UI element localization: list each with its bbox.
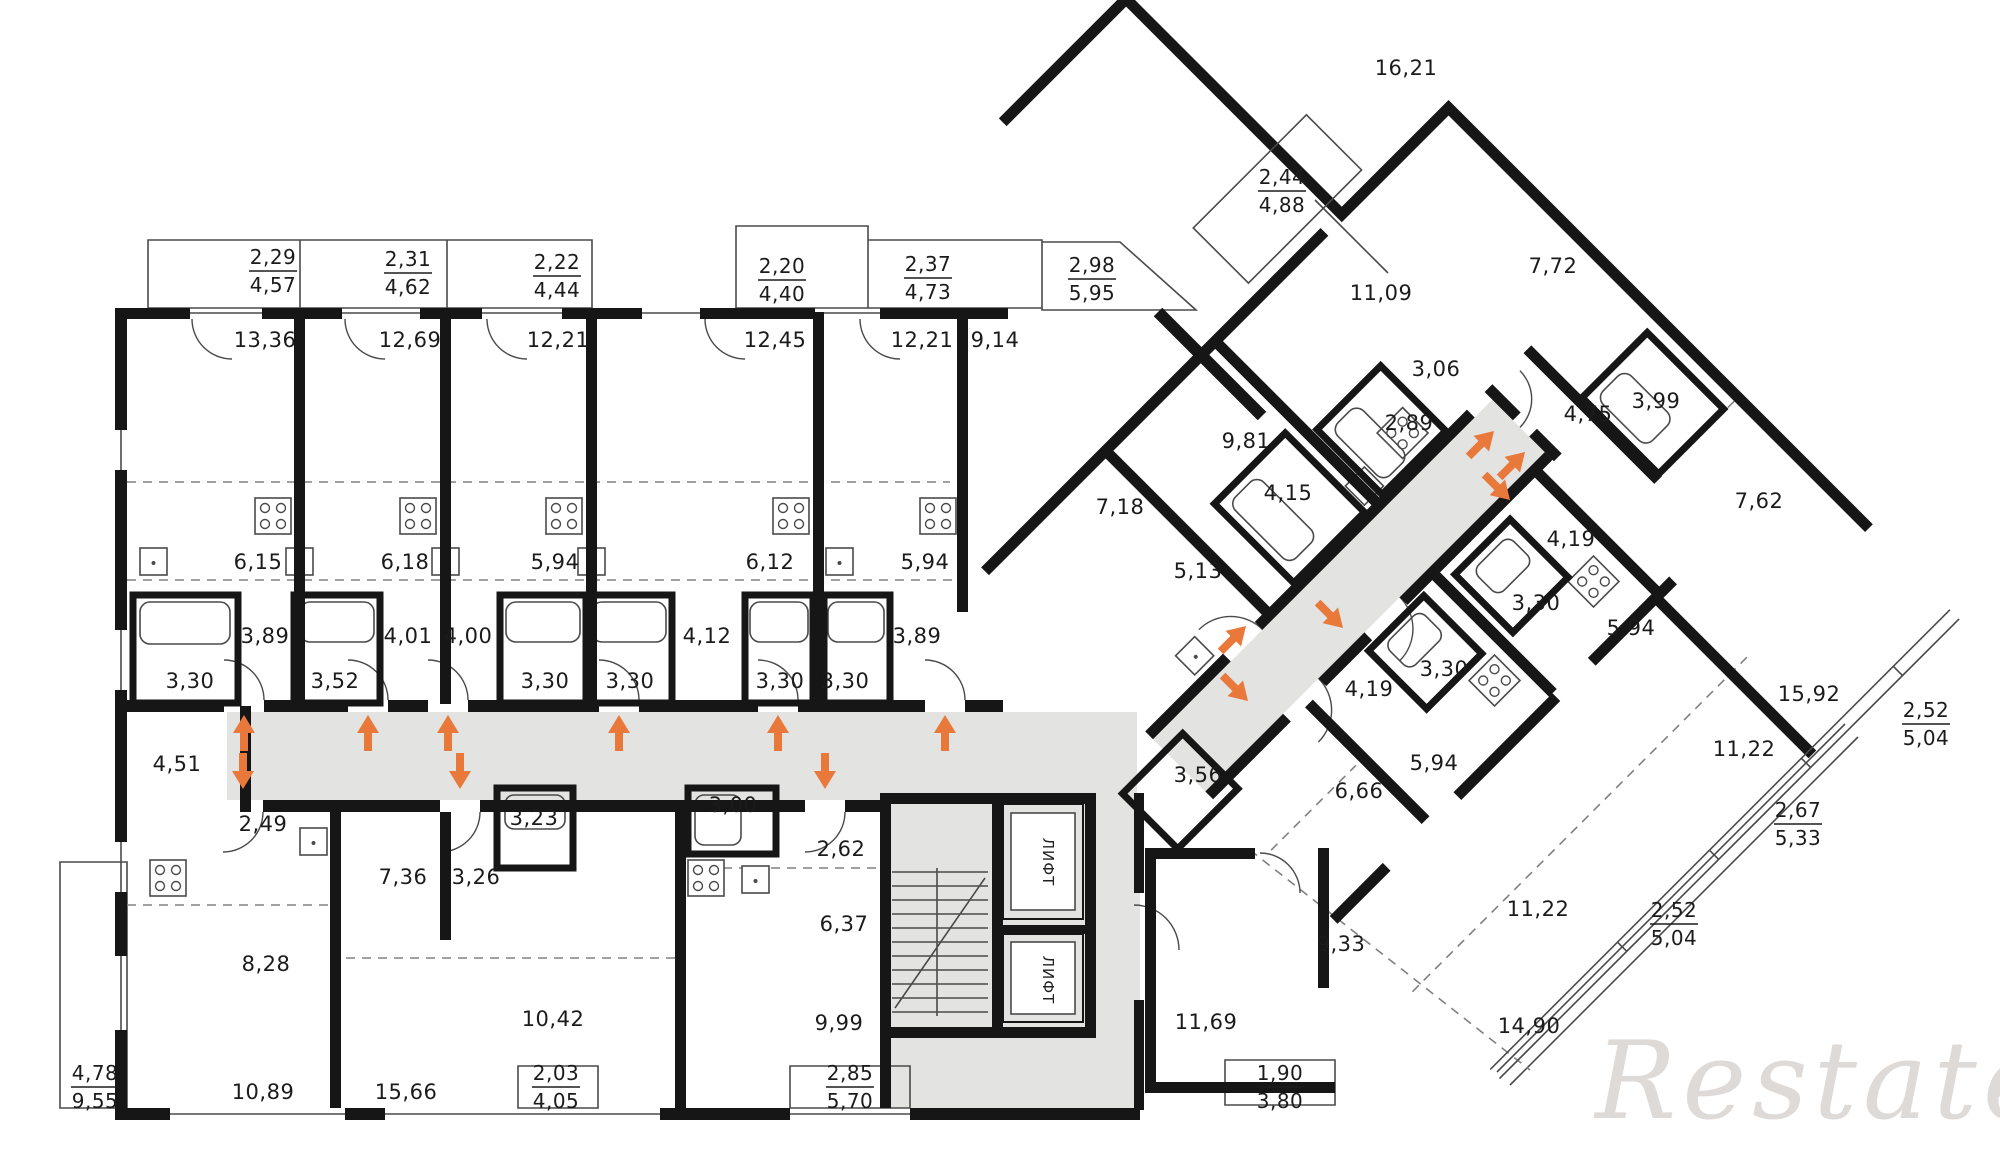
room-label: 7,18 — [1096, 495, 1145, 519]
svg-text:5,95: 5,95 — [1069, 281, 1116, 305]
fraction: 2,67 5,33 — [1774, 798, 1822, 850]
sink-icon — [300, 828, 327, 855]
room-label: 11,09 — [1350, 281, 1413, 305]
room-label: 12,45 — [744, 328, 807, 352]
fraction: 2,20 4,40 — [758, 254, 806, 306]
room-label: 14,90 — [1498, 1014, 1561, 1038]
floor-plan-canvas: 13,36 12,69 12,21 12,45 12,21 9,14 6,15 … — [0, 0, 2000, 1164]
room-label: 3,56 — [1174, 763, 1223, 787]
fraction: 2,22 4,44 — [533, 250, 581, 302]
bathtub-icon — [140, 602, 230, 644]
room-label: 7,36 — [379, 865, 428, 889]
room-label: 12,21 — [891, 328, 954, 352]
room-label: 9,99 — [815, 1011, 864, 1035]
room-label: 3,52 — [311, 669, 360, 693]
room-label: 5,94 — [531, 550, 580, 574]
svg-text:2,52: 2,52 — [1903, 698, 1950, 722]
svg-text:3,80: 3,80 — [1257, 1089, 1304, 1113]
stove-icon — [688, 860, 724, 896]
room-label: 5,94 — [901, 550, 950, 574]
room-label: 9,14 — [971, 328, 1020, 352]
stove-icon — [1568, 556, 1619, 607]
room-label: 4,15 — [1264, 481, 1313, 505]
room-label: 15,66 — [375, 1080, 438, 1104]
fraction: 2,31 4,62 — [384, 247, 432, 299]
stove-icon — [255, 498, 291, 534]
svg-text:2,85: 2,85 — [827, 1061, 874, 1085]
svg-text:4,62: 4,62 — [385, 275, 432, 299]
room-label: 3,89 — [241, 624, 290, 648]
room-label: 6,12 — [746, 550, 795, 574]
room-label: 10,89 — [232, 1080, 295, 1104]
floor-plan: 13,36 12,69 12,21 12,45 12,21 9,14 6,15 … — [0, 0, 2000, 1164]
bathtub-icon — [592, 602, 666, 642]
sink-icon — [742, 866, 769, 893]
room-label: 3,30 — [1420, 657, 1469, 681]
room-label: 3,26 — [452, 865, 501, 889]
svg-text:2,37: 2,37 — [905, 252, 952, 276]
svg-text:5,33: 5,33 — [1775, 826, 1822, 850]
svg-text:2,31: 2,31 — [385, 247, 432, 271]
fraction: 2,52 5,04 — [1650, 898, 1698, 950]
svg-text:4,78: 4,78 — [72, 1061, 119, 1085]
stove-icon — [400, 498, 436, 534]
svg-text:2,22: 2,22 — [534, 250, 581, 274]
room-label: 3,30 — [821, 669, 870, 693]
fraction: 2,44 4,88 — [1258, 165, 1306, 217]
fraction: 2,52 5,04 — [1902, 698, 1950, 750]
room-label: 6,66 — [1335, 779, 1384, 803]
room-label: 4,51 — [153, 752, 202, 776]
svg-text:2,52: 2,52 — [1651, 898, 1698, 922]
svg-text:5,04: 5,04 — [1651, 926, 1698, 950]
bathtub-icon — [506, 602, 580, 642]
svg-text:2,44: 2,44 — [1259, 165, 1306, 189]
room-label: 4,19 — [1547, 527, 1596, 551]
room-label: 10,42 — [522, 1007, 585, 1031]
elevator-label: ЛИФТ — [1039, 838, 1057, 887]
svg-text:5,04: 5,04 — [1903, 726, 1950, 750]
svg-text:4,88: 4,88 — [1259, 193, 1306, 217]
sink-icon — [826, 548, 853, 575]
room-label: 4,00 — [444, 624, 493, 648]
room-label: 3,89 — [893, 624, 942, 648]
room-label: 3,30 — [1512, 591, 1561, 615]
room-label: 2,62 — [817, 837, 866, 861]
bathtub-icon — [750, 602, 808, 642]
room-label: 3,00 — [709, 793, 758, 817]
svg-text:1,90: 1,90 — [1257, 1061, 1304, 1085]
room-label: 9,81 — [1222, 429, 1271, 453]
fraction: 2,98 5,95 — [1068, 253, 1116, 305]
svg-text:2,98: 2,98 — [1069, 253, 1116, 277]
room-label: 2,89 — [1385, 411, 1434, 435]
bathtub-icon — [828, 602, 884, 642]
fraction: 2,03 4,05 — [532, 1061, 580, 1113]
svg-text:9,55: 9,55 — [72, 1089, 119, 1113]
room-label: 15,92 — [1778, 682, 1841, 706]
svg-text:2,29: 2,29 — [250, 245, 297, 269]
svg-text:2,03: 2,03 — [533, 1061, 580, 1085]
room-label: 7,62 — [1735, 489, 1784, 513]
stove-icon — [150, 860, 186, 896]
room-label: 3,30 — [756, 669, 805, 693]
svg-text:4,57: 4,57 — [250, 273, 297, 297]
room-label: 5,13 — [1174, 559, 1223, 583]
stove-icon — [546, 498, 582, 534]
room-label: 11,69 — [1175, 1010, 1238, 1034]
stove-icon — [920, 498, 956, 534]
room-label: 3,06 — [1412, 357, 1461, 381]
room-label: 6,18 — [381, 550, 430, 574]
svg-text:2,20: 2,20 — [759, 254, 806, 278]
watermark: Restate — [1593, 1019, 2000, 1144]
room-label: 3,99 — [1632, 389, 1681, 413]
svg-text:4,73: 4,73 — [905, 280, 952, 304]
elevator-label: ЛИФТ — [1039, 956, 1057, 1005]
room-label: 3,30 — [521, 669, 570, 693]
room-label: 5,94 — [1607, 616, 1656, 640]
room-label: 4,12 — [683, 624, 732, 648]
room-label: 3,30 — [606, 669, 655, 693]
room-label: 13,36 — [234, 328, 297, 352]
svg-text:4,05: 4,05 — [533, 1089, 580, 1113]
svg-text:2,67: 2,67 — [1775, 798, 1822, 822]
room-label: 6,37 — [820, 912, 869, 936]
room-label: 9,33 — [1317, 932, 1366, 956]
fraction: 2,29 4,57 — [249, 245, 297, 297]
room-label: 3,23 — [510, 806, 559, 830]
svg-text:4,40: 4,40 — [759, 282, 806, 306]
room-label: 12,21 — [527, 328, 590, 352]
room-label: 2,49 — [239, 812, 288, 836]
fraction: 4,78 9,55 — [71, 1061, 119, 1113]
svg-text:4,44: 4,44 — [534, 278, 581, 302]
sink-icon — [140, 548, 167, 575]
room-label: 11,22 — [1507, 897, 1570, 921]
room-label: 3,30 — [166, 669, 215, 693]
room-label: 6,15 — [234, 550, 283, 574]
fraction: 2,37 4,73 — [904, 252, 952, 304]
room-label: 4,75 — [1564, 402, 1613, 426]
room-label: 8,28 — [242, 952, 291, 976]
room-label: 11,22 — [1713, 737, 1776, 761]
room-label: 7,72 — [1529, 254, 1578, 278]
fraction: 2,85 5,70 — [826, 1061, 874, 1113]
bathtub-icon — [300, 602, 374, 642]
fraction: 1,90 3,80 — [1256, 1061, 1304, 1113]
room-label: 12,69 — [379, 328, 442, 352]
stove-icon — [773, 498, 809, 534]
svg-text:5,70: 5,70 — [827, 1089, 874, 1113]
room-label: 4,01 — [384, 624, 433, 648]
room-label: 4,19 — [1345, 677, 1394, 701]
room-label: 5,94 — [1410, 751, 1459, 775]
room-label: 16,21 — [1375, 56, 1438, 80]
